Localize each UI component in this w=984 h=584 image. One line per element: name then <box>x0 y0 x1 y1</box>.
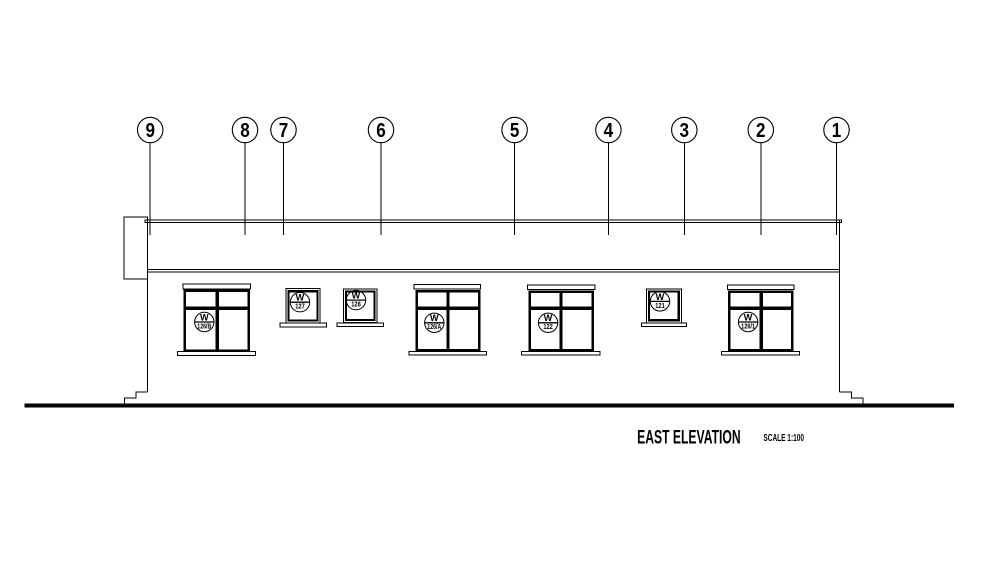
svg-text:5: 5 <box>510 120 520 142</box>
svg-text:2: 2 <box>756 120 766 142</box>
svg-text:128: 128 <box>351 300 361 309</box>
svg-text:122: 122 <box>543 322 553 331</box>
svg-text:3: 3 <box>680 120 690 142</box>
svg-text:1: 1 <box>832 120 842 142</box>
svg-text:EAST ELEVATION: EAST ELEVATION <box>637 428 741 449</box>
svg-text:126/1: 126/1 <box>741 321 755 330</box>
svg-text:126/B: 126/B <box>197 321 211 330</box>
svg-text:7: 7 <box>279 120 289 142</box>
svg-text:4: 4 <box>604 120 614 142</box>
svg-text:126/A: 126/A <box>427 322 441 331</box>
svg-text:127: 127 <box>295 302 305 311</box>
svg-text:121: 121 <box>655 301 665 310</box>
svg-text:6: 6 <box>376 120 386 142</box>
svg-text:SCALE 1:100: SCALE 1:100 <box>763 432 804 444</box>
svg-text:8: 8 <box>240 120 250 142</box>
svg-text:9: 9 <box>145 120 155 142</box>
